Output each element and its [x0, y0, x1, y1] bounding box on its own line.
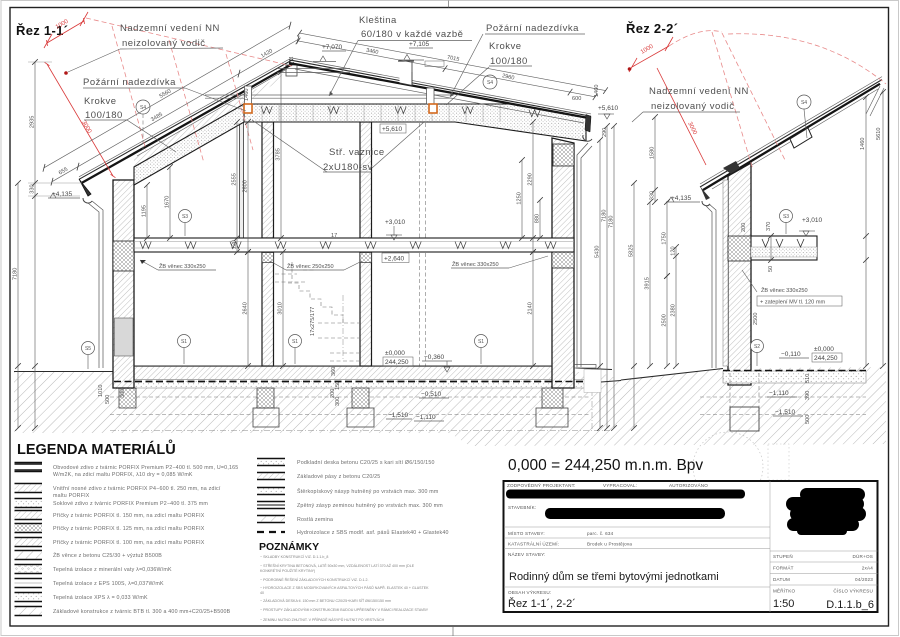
- svg-text:1010: 1010: [98, 385, 104, 397]
- svg-text:200: 200: [330, 389, 336, 398]
- svg-text:244,250: 244,250: [385, 359, 409, 366]
- svg-text:MÍSTO STAVBY:: MÍSTO STAVBY:: [508, 530, 545, 536]
- svg-text:S1: S1: [478, 339, 484, 345]
- svg-text:S4: S4: [487, 80, 493, 86]
- svg-text:3785: 3785: [276, 148, 282, 160]
- svg-text:Zpětný zásyp zeminou hutněný p: Zpětný zásyp zeminou hutněný po vrstvách…: [297, 503, 443, 509]
- svg-text:ŽB věnec 330x250: ŽB věnec 330x250: [761, 286, 808, 294]
- svg-text:−1,510: −1,510: [388, 412, 408, 419]
- svg-text:5825: 5825: [629, 245, 635, 257]
- svg-text:390: 390: [805, 391, 811, 400]
- svg-text:Brodek u Prostějova: Brodek u Prostějova: [587, 542, 632, 547]
- svg-text:300: 300: [120, 389, 126, 398]
- svg-text:330: 330: [30, 184, 36, 193]
- svg-text:Obvodové zdivo z tvárnic PORFI: Obvodové zdivo z tvárnic PORFIX Premium …: [53, 465, 238, 471]
- svg-text:Krokve: Krokve: [489, 41, 522, 52]
- svg-text:Soklové zdivo z tvárnic PORFIX: Soklové zdivo z tvárnic PORFIX Premium P…: [53, 501, 208, 507]
- svg-text:STAVEBNÍK:: STAVEBNÍK:: [508, 504, 536, 510]
- svg-text:0,000 = 244,250 m.n.m. Bpv: 0,000 = 244,250 m.n.m. Bpv: [508, 457, 703, 474]
- svg-text:7180: 7180: [602, 210, 608, 222]
- svg-text:Nadzemní vedení NN: Nadzemní vedení NN: [120, 23, 220, 34]
- svg-text:2640: 2640: [243, 302, 249, 314]
- svg-text:1460: 1460: [860, 138, 866, 150]
- svg-text:2xU180-sv: 2xU180-sv: [323, 162, 373, 173]
- svg-text:17x275/177: 17x275/177: [310, 307, 316, 336]
- svg-text:+5,610: +5,610: [598, 105, 618, 112]
- svg-text:2xA4: 2xA4: [862, 566, 874, 571]
- svg-text:DATUM: DATUM: [773, 577, 790, 582]
- svg-text:Štěrkopískový násyp hutněný po: Štěrkopískový násyp hutněný po vrstvách …: [297, 488, 439, 495]
- svg-text:S3: S3: [182, 214, 188, 220]
- svg-text:120: 120: [671, 246, 677, 255]
- svg-text:DÚR+OS: DÚR+OS: [853, 553, 873, 559]
- svg-text:Hydroizolace z SBS modif. asf.: Hydroizolace z SBS modif. asf. pásů Elas…: [297, 529, 449, 536]
- svg-text:40: 40: [260, 591, 264, 595]
- svg-text:1750: 1750: [662, 232, 668, 244]
- svg-text:2935: 2935: [30, 116, 36, 128]
- svg-text:1580: 1580: [650, 147, 656, 159]
- svg-text:Tepelná izolace z minerální va: Tepelná izolace z minerální vaty λ=0,036…: [53, 567, 172, 573]
- svg-text:NÁZEV STAVBY:: NÁZEV STAVBY:: [508, 551, 546, 557]
- svg-text:−0,110: −0,110: [781, 351, 801, 358]
- svg-text:7180: 7180: [609, 216, 615, 228]
- svg-text:ČÍSLO VÝKRESU: ČÍSLO VÝKRESU: [833, 588, 873, 594]
- svg-text:−1,110: −1,110: [416, 414, 436, 421]
- svg-text:3010: 3010: [278, 302, 284, 314]
- svg-text:KONKRÉTNÍ POUŽITÉ KRYTINY): KONKRÉTNÍ POUŽITÉ KRYTINY): [260, 568, 315, 573]
- svg-text:1460: 1460: [244, 89, 250, 101]
- svg-text:1460: 1460: [594, 85, 600, 97]
- svg-text:− ZÁKLADOVÁ DESKA tl. 150 mm: − ZÁKLADOVÁ DESKA tl. 150 mm Z BETONU C2…: [260, 598, 391, 603]
- svg-text:S5: S5: [85, 346, 91, 352]
- svg-text:330: 330: [650, 191, 656, 200]
- svg-text:1250: 1250: [517, 192, 523, 204]
- svg-text:7180: 7180: [13, 268, 19, 280]
- svg-text:+5,610: +5,610: [382, 126, 402, 133]
- svg-text:+4,135: +4,135: [671, 195, 691, 202]
- svg-text:Nadzemní vedení NN: Nadzemní vedení NN: [649, 86, 749, 97]
- svg-text:−1,110: −1,110: [769, 390, 789, 397]
- svg-text:neizolovaný vodič: neizolovaný vodič: [651, 101, 735, 112]
- svg-text:− SKLADBY KONSTRUKCÍ VIZ. D.1: − SKLADBY KONSTRUKCÍ VIZ. D.1.1.b_8: [260, 555, 328, 559]
- svg-text:2600: 2600: [243, 180, 249, 192]
- svg-text:500: 500: [805, 415, 811, 424]
- svg-text:+7,105: +7,105: [409, 41, 429, 48]
- svg-text:+2,640: +2,640: [384, 256, 404, 263]
- svg-text:1670: 1670: [165, 196, 171, 208]
- svg-text:Stř. vaznice: Stř. vaznice: [329, 147, 385, 158]
- svg-text:200: 200: [741, 223, 747, 232]
- svg-text:− ZEMINU NUTNO ZHUTNIT. V PŘÍ: − ZEMINU NUTNO ZHUTNIT. V PŘÍPADĚ NÁSYPŮ…: [260, 617, 385, 622]
- svg-text:maltu PORFIX: maltu PORFIX: [53, 493, 90, 499]
- svg-text:Požární nadezdívka: Požární nadezdívka: [486, 23, 579, 34]
- svg-text:60/180 v každé vazbě: 60/180 v každé vazbě: [361, 29, 463, 40]
- svg-text:neizolovaný vodič: neizolovaný vodič: [122, 38, 206, 49]
- svg-text:−1,510: −1,510: [775, 409, 795, 416]
- svg-text:Tepelná izolace XPS λ = 0,033: Tepelná izolace XPS λ = 0,033 W/mK: [53, 595, 148, 601]
- svg-text:FORMÁT: FORMÁT: [773, 565, 794, 571]
- svg-text:Řez 1-1´, 2-2´: Řez 1-1´, 2-2´: [508, 597, 576, 610]
- svg-text:D.1.1.b_6: D.1.1.b_6: [826, 599, 874, 611]
- svg-text:S4: S4: [801, 100, 807, 106]
- svg-text:S2: S2: [754, 344, 760, 350]
- svg-text:−0,360: −0,360: [424, 354, 444, 361]
- svg-text:− PODROBNÉ ŘEŠENÍ ZÁKLADOVÝCH: − PODROBNÉ ŘEŠENÍ ZÁKLADOVÝCH KONSTRUKCÍ…: [260, 577, 369, 582]
- svg-text:AUTORIZOVÁNO: AUTORIZOVÁNO: [669, 482, 708, 488]
- svg-text:ŽB věnce z betonu C25/30 + výz: ŽB věnce z betonu C25/30 + výztuž B500B: [53, 551, 162, 559]
- svg-text:120: 120: [232, 240, 238, 249]
- svg-text:MĚŘÍTKO: MĚŘÍTKO: [773, 587, 796, 594]
- svg-text:ŽB věnec 330x250: ŽB věnec 330x250: [159, 262, 206, 270]
- svg-text:600: 600: [572, 96, 581, 102]
- svg-text:Rostlá zemina: Rostlá zemina: [297, 517, 333, 523]
- svg-text:2555: 2555: [232, 173, 238, 185]
- svg-text:S1: S1: [181, 339, 187, 345]
- svg-text:− STŘEŠNÍ KRYTINA BETONOVÁ, L: − STŘEŠNÍ KRYTINA BETONOVÁ, LATĚ 50x30 m…: [260, 563, 415, 568]
- svg-text:Podkladní deska betonu C20/25: Podkladní deska betonu C20/25 s kari sít…: [297, 460, 435, 466]
- svg-text:W/m2K, na zdicí maltu PORFIX,: W/m2K, na zdicí maltu PORFIX, λ10 dry = …: [53, 472, 193, 478]
- svg-text:50: 50: [768, 266, 774, 272]
- svg-text:Příčky z tvárnic PORFIX tl. 12: Příčky z tvárnic PORFIX tl. 125 mm, na z…: [53, 526, 205, 532]
- svg-text:ZODPOVĚDNÝ PROJEKTANT:: ZODPOVĚDNÝ PROJEKTANT:: [507, 481, 576, 488]
- svg-text:Krokve: Krokve: [84, 96, 117, 107]
- svg-text:100/180: 100/180: [85, 110, 123, 121]
- svg-text:1:50: 1:50: [773, 598, 794, 610]
- svg-text:− HYDROIZOLACE Z SBS MODIFIKO: − HYDROIZOLACE Z SBS MODIFIKOVANÝCH ASFA…: [260, 585, 429, 590]
- svg-text:+3,010: +3,010: [802, 217, 822, 224]
- svg-text:Tepelná izolace z EPS 100S, λ=: Tepelná izolace z EPS 100S, λ=0,037W/mK: [53, 581, 164, 587]
- svg-text:360: 360: [331, 367, 337, 376]
- svg-text:2500: 2500: [753, 313, 759, 325]
- svg-text:04/2023: 04/2023: [855, 577, 873, 582]
- svg-text:LEGENDA MATERIÁLŮ: LEGENDA MATERIÁLŮ: [17, 439, 176, 458]
- svg-text:880: 880: [535, 214, 541, 223]
- svg-text:−0,510: −0,510: [421, 391, 441, 398]
- svg-text:− PROSTUPY ZÁKLADOVÝMI KONSTR: − PROSTUPY ZÁKLADOVÝMI KONSTRUKCEMI BUDO…: [260, 607, 429, 612]
- svg-text:ŽB věnec 250x250: ŽB věnec 250x250: [287, 262, 334, 270]
- svg-text:2140: 2140: [528, 302, 534, 314]
- svg-text:Příčky z tvárnic PORFIX tl. 10: Příčky z tvárnic PORFIX tl. 100 mm, na z…: [53, 540, 205, 546]
- svg-text:2290: 2290: [528, 173, 534, 185]
- svg-text:5430: 5430: [595, 246, 601, 258]
- svg-text:300: 300: [335, 397, 341, 406]
- svg-text:2500: 2500: [662, 314, 668, 326]
- svg-text:±0,000: ±0,000: [814, 346, 834, 353]
- svg-text:S3: S3: [783, 214, 789, 220]
- svg-text:370: 370: [766, 222, 772, 231]
- svg-text:±0,000: ±0,000: [385, 350, 405, 357]
- svg-text:Rodinný dům se třemi bytovými: Rodinný dům se třemi bytovými jednotkami: [509, 571, 719, 583]
- svg-text:POZNÁMKY: POZNÁMKY: [259, 540, 319, 553]
- svg-text:Kleština: Kleština: [359, 15, 397, 26]
- svg-text:parc. č. 634: parc. č. 634: [587, 531, 614, 536]
- svg-text:500: 500: [105, 395, 111, 404]
- svg-text:510: 510: [805, 374, 811, 383]
- svg-text:Příčky z tvárnic PORFIX tl. 15: Příčky z tvárnic PORFIX tl. 150 mm, na z…: [53, 513, 205, 519]
- svg-text:S4: S4: [140, 105, 146, 111]
- svg-text:+3,010: +3,010: [385, 219, 405, 226]
- svg-text:17: 17: [331, 233, 337, 239]
- svg-text:+ zateplení MV tl. 120 mm: + zateplení MV tl. 120 mm: [760, 300, 825, 306]
- svg-text:244,250: 244,250: [814, 355, 838, 362]
- svg-text:KATASTRÁLNÍ ÚZEMÍ:: KATASTRÁLNÍ ÚZEMÍ:: [508, 541, 559, 547]
- svg-text:Vnitřní nosné zdivo z tvárnic: Vnitřní nosné zdivo z tvárnic PORFIX P4−…: [53, 486, 221, 492]
- svg-text:Požární nadezdívka: Požární nadezdívka: [83, 77, 176, 88]
- svg-text:Základové konstrukce z tvárnic: Základové konstrukce z tvárnic BTB tl. 3…: [53, 609, 231, 615]
- svg-text:100/180: 100/180: [490, 56, 528, 67]
- svg-text:3915: 3915: [645, 277, 651, 289]
- svg-text:5610: 5610: [876, 128, 882, 140]
- svg-text:VYPRACOVAL:: VYPRACOVAL:: [603, 483, 637, 488]
- svg-text:Řez 2-2´: Řez 2-2´: [626, 21, 678, 36]
- svg-text:S1: S1: [292, 339, 298, 345]
- svg-text:ŽB věnec 330x250: ŽB věnec 330x250: [452, 260, 499, 268]
- svg-text:OBSAH VÝKRESU:: OBSAH VÝKRESU:: [508, 589, 551, 595]
- svg-text:1195: 1195: [142, 205, 148, 217]
- svg-text:2380: 2380: [671, 304, 677, 316]
- svg-text:Základové pásy z betonu C20/25: Základové pásy z betonu C20/25: [297, 474, 380, 480]
- svg-text:STUPEŇ: STUPEŇ: [773, 553, 793, 559]
